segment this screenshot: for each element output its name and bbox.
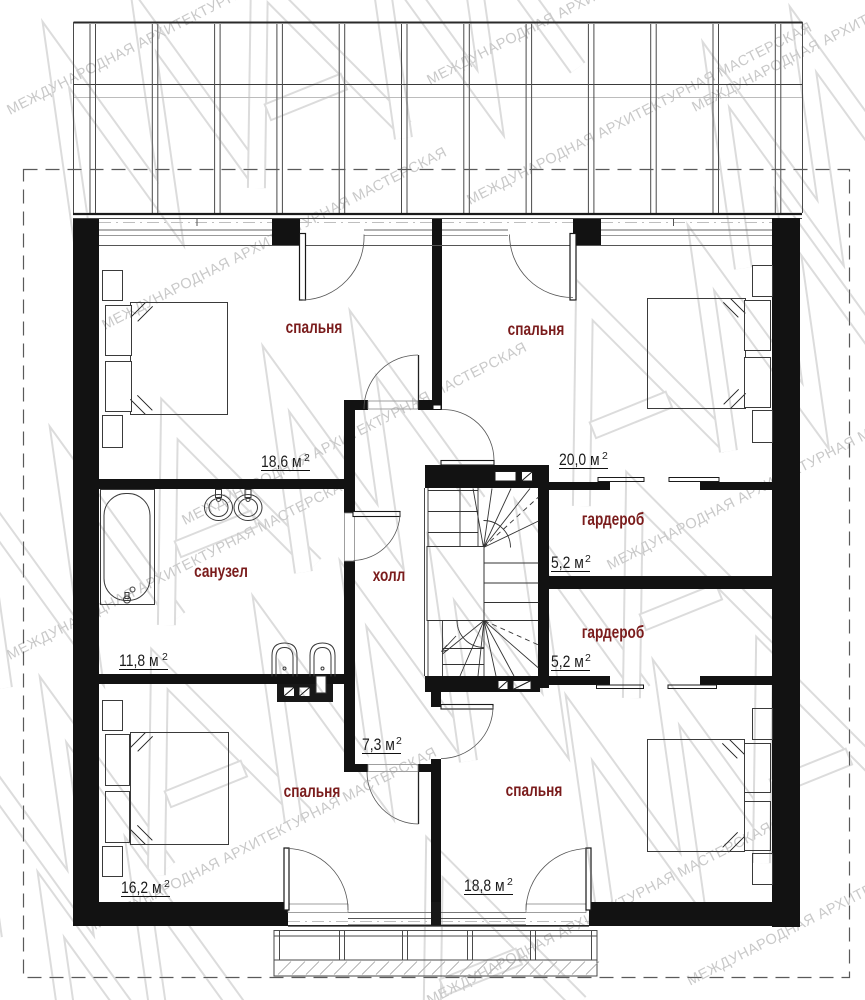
svg-text:2: 2: [507, 876, 513, 888]
svg-text:холл: холл: [373, 567, 406, 586]
svg-text:2: 2: [396, 735, 402, 747]
svg-text:2: 2: [585, 553, 591, 565]
svg-text:спальня: спальня: [506, 782, 563, 801]
svg-text:спальня: спальня: [508, 321, 565, 340]
svg-text:2: 2: [585, 652, 591, 664]
svg-text:2: 2: [602, 450, 608, 462]
svg-text:спальня: спальня: [286, 319, 343, 338]
